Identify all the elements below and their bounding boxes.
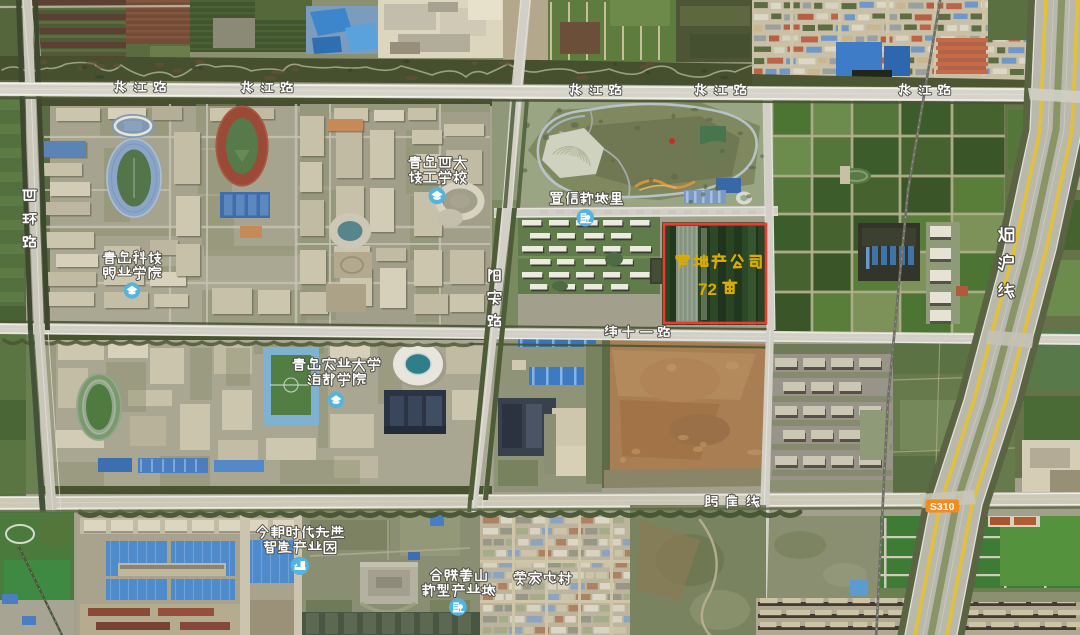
svg-text:72: 72 — [698, 280, 717, 299]
svg-text:S310: S310 — [930, 501, 955, 513]
